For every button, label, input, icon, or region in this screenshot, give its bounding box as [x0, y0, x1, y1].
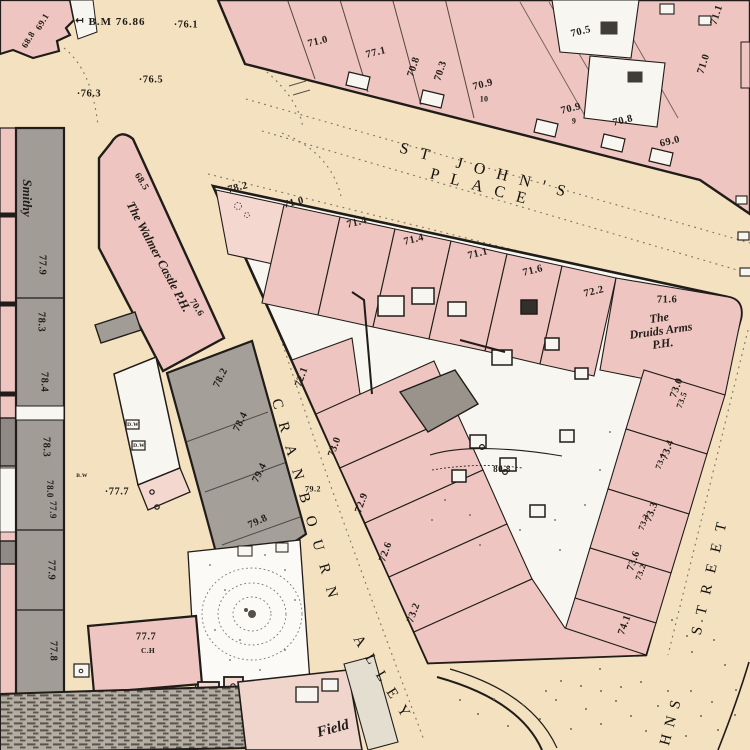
- garden-plot: [188, 540, 310, 692]
- hatched-glasshouse-band: [0, 686, 258, 750]
- left-smithy-strip: [0, 128, 64, 694]
- map-graphic: [0, 0, 750, 750]
- map-canvas[interactable]: ST JOHN'S PLACECRANBOURNALLEYSTREETHNSSm…: [0, 0, 750, 750]
